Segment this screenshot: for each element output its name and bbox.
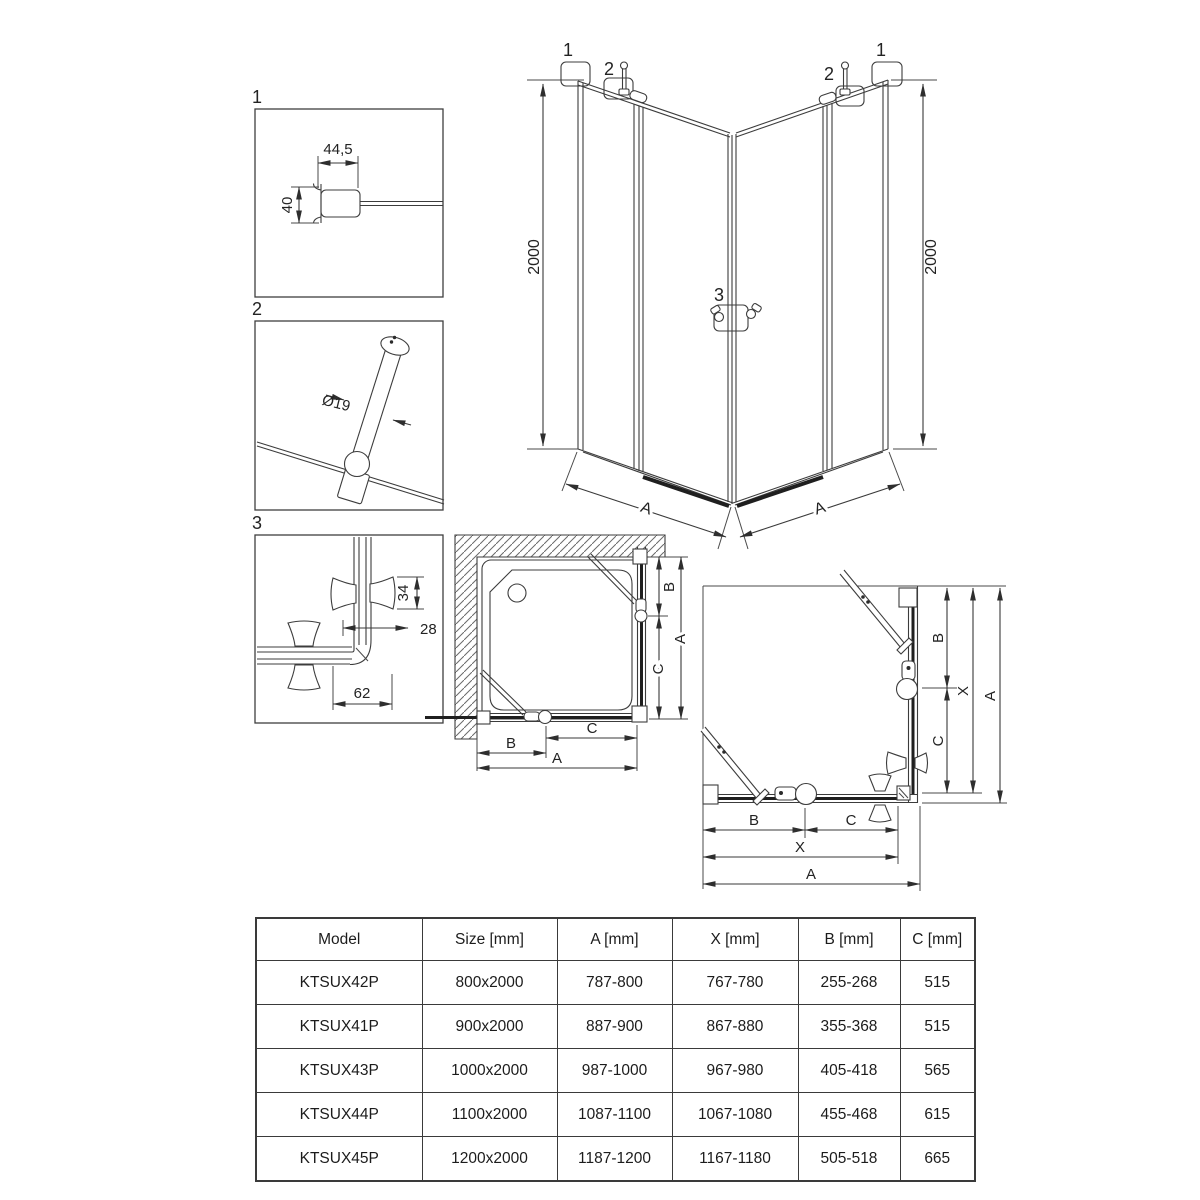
threshold-left: [643, 477, 729, 506]
plan-small-side-c: C: [650, 663, 667, 674]
door-knob: [288, 621, 320, 646]
shower-tray: [490, 570, 632, 710]
callout-1-left-marker: [561, 62, 590, 86]
callout-1-right-marker: [872, 62, 902, 86]
elevation-height-left: 2000: [526, 239, 543, 275]
wall-profile-block: [899, 588, 917, 607]
door-knob-icon: [715, 313, 724, 322]
detail-3-height-dim: 34: [395, 585, 412, 602]
detail-3-width-dim: 62: [354, 685, 371, 702]
cell-size: 1200x2000: [422, 1137, 557, 1182]
door-knob-icon: [747, 310, 756, 319]
support-bar-icon: [842, 62, 849, 69]
plan-small-side-a: A: [672, 634, 689, 644]
support-bar: [588, 557, 634, 604]
detail-2-diameter-dim: Ø19: [320, 392, 352, 415]
callout-2-right-label: 2: [824, 64, 834, 84]
plan-small-bottom-c: C: [587, 720, 598, 737]
cell-x: 867-880: [672, 1005, 798, 1049]
plan-large-side-a: A: [982, 691, 999, 701]
wall-profile-block: [633, 549, 647, 564]
plan-view-with-tray: B C A C B A: [425, 535, 689, 771]
plan-large-side-b: B: [930, 633, 947, 643]
detail-3-corner-view: 3 34 28 62: [252, 513, 443, 723]
detail-1-callout: 1: [252, 87, 262, 107]
cell-x: 1167-1180: [672, 1137, 798, 1182]
detail-1-wall-profile-view: 1 44,5 40: [252, 87, 443, 297]
detail-2-callout: 2: [252, 299, 262, 319]
col-header-model: Model: [256, 918, 422, 961]
cell-b: 505-518: [798, 1137, 900, 1182]
support-bar: [840, 574, 901, 648]
callout-3-label: 3: [714, 285, 724, 305]
drain-icon: [508, 584, 526, 602]
callout-1-right-label: 1: [876, 40, 886, 60]
table-row: KTSUX44P 1100x2000 1087-1100 1067-1080 4…: [256, 1093, 975, 1137]
door-knob: [887, 752, 907, 774]
cell-a: 787-800: [557, 961, 672, 1005]
cell-model: KTSUX42P: [256, 961, 422, 1005]
wall-profile-block: [703, 785, 718, 804]
cell-a: 1087-1100: [557, 1093, 672, 1137]
threshold-right: [737, 477, 823, 506]
col-header-x: X [mm]: [672, 918, 798, 961]
cell-x: 767-780: [672, 961, 798, 1005]
plan-view-adjustment: B C X A B C X A: [701, 570, 1007, 891]
door-pivot: [524, 712, 540, 721]
cell-model: KTSUX45P: [256, 1137, 422, 1182]
detail-3-callout: 3: [252, 513, 262, 533]
callout-2-left-label: 2: [604, 59, 614, 79]
cell-b: 355-368: [798, 1005, 900, 1049]
table-row: KTSUX45P 1200x2000 1187-1200 1167-1180 5…: [256, 1137, 975, 1182]
table-header-row: Model Size [mm] A [mm] X [mm] B [mm] C […: [256, 918, 975, 961]
plan-large-bottom-c: C: [846, 812, 857, 829]
elevation-view: 2000 2000 A: [526, 40, 940, 549]
detail-3-frame: [255, 535, 443, 723]
cell-model: KTSUX41P: [256, 1005, 422, 1049]
table-row: KTSUX42P 800x2000 787-800 767-780 255-26…: [256, 961, 975, 1005]
door-pivot: [902, 661, 915, 680]
elevation-width-left: A: [638, 499, 654, 519]
corner-connector: [632, 706, 647, 722]
wall-profile-block: [477, 711, 490, 724]
plan-small-bottom-b: B: [506, 735, 516, 752]
elevation-height-right: 2000: [923, 239, 940, 275]
col-header-a: A [mm]: [557, 918, 672, 961]
table-row: KTSUX43P 1000x2000 987-1000 967-980 405-…: [256, 1049, 975, 1093]
cell-size: 1000x2000: [422, 1049, 557, 1093]
door-pivot: [775, 787, 796, 800]
cell-a: 987-1000: [557, 1049, 672, 1093]
detail-3-offset-dim: 28: [420, 621, 437, 638]
cell-x: 1067-1080: [672, 1093, 798, 1137]
detail-2-support-bar-view: 2 Ø19: [252, 299, 444, 510]
support-bar: [480, 673, 523, 715]
cell-c: 665: [900, 1137, 975, 1182]
shower-tray-rim: [482, 560, 642, 719]
cell-b: 405-418: [798, 1049, 900, 1093]
wall-profile-body: [321, 190, 360, 217]
cell-size: 900x2000: [422, 1005, 557, 1049]
cell-model: KTSUX44P: [256, 1093, 422, 1137]
cell-c: 565: [900, 1049, 975, 1093]
technical-drawing: 1 44,5 40 2: [0, 0, 1200, 910]
cell-a: 887-900: [557, 1005, 672, 1049]
table-row: KTSUX41P 900x2000 887-900 867-880 355-36…: [256, 1005, 975, 1049]
cell-size: 1100x2000: [422, 1093, 557, 1137]
detail-1-width-dim: 44,5: [323, 141, 352, 158]
plan-small-side-b: B: [661, 582, 678, 592]
cell-b: 455-468: [798, 1093, 900, 1137]
cell-x: 967-980: [672, 1049, 798, 1093]
col-header-c: C [mm]: [900, 918, 975, 961]
door-knob: [331, 578, 356, 610]
cell-c: 615: [900, 1093, 975, 1137]
cell-a: 1187-1200: [557, 1137, 672, 1182]
cell-c: 515: [900, 961, 975, 1005]
plan-small-bottom-a: A: [552, 750, 562, 767]
plan-large-side-x: X: [955, 686, 972, 696]
cell-b: 255-268: [798, 961, 900, 1005]
support-bar-icon: [621, 62, 628, 69]
size-table-wrap: Model Size [mm] A [mm] X [mm] B [mm] C […: [255, 917, 976, 1182]
cell-c: 515: [900, 1005, 975, 1049]
plan-large-side-c: C: [930, 735, 947, 746]
callout-1-left-label: 1: [563, 40, 573, 60]
plan-large-bottom-b: B: [749, 812, 759, 829]
detail-1-height-dim: 40: [279, 197, 296, 214]
door-cap-left: [629, 90, 648, 104]
size-table: Model Size [mm] A [mm] X [mm] B [mm] C […: [255, 917, 976, 1182]
col-header-b: B [mm]: [798, 918, 900, 961]
support-bar-joint: [345, 452, 370, 477]
plan-large-bottom-x: X: [795, 839, 805, 856]
plan-large-bottom-a: A: [806, 866, 816, 883]
shower-enclosure-technical-sheet: 1 44,5 40 2: [0, 0, 1200, 1200]
cell-model: KTSUX43P: [256, 1049, 422, 1093]
cell-size: 800x2000: [422, 961, 557, 1005]
col-header-size: Size [mm]: [422, 918, 557, 961]
door-knob: [869, 774, 891, 791]
